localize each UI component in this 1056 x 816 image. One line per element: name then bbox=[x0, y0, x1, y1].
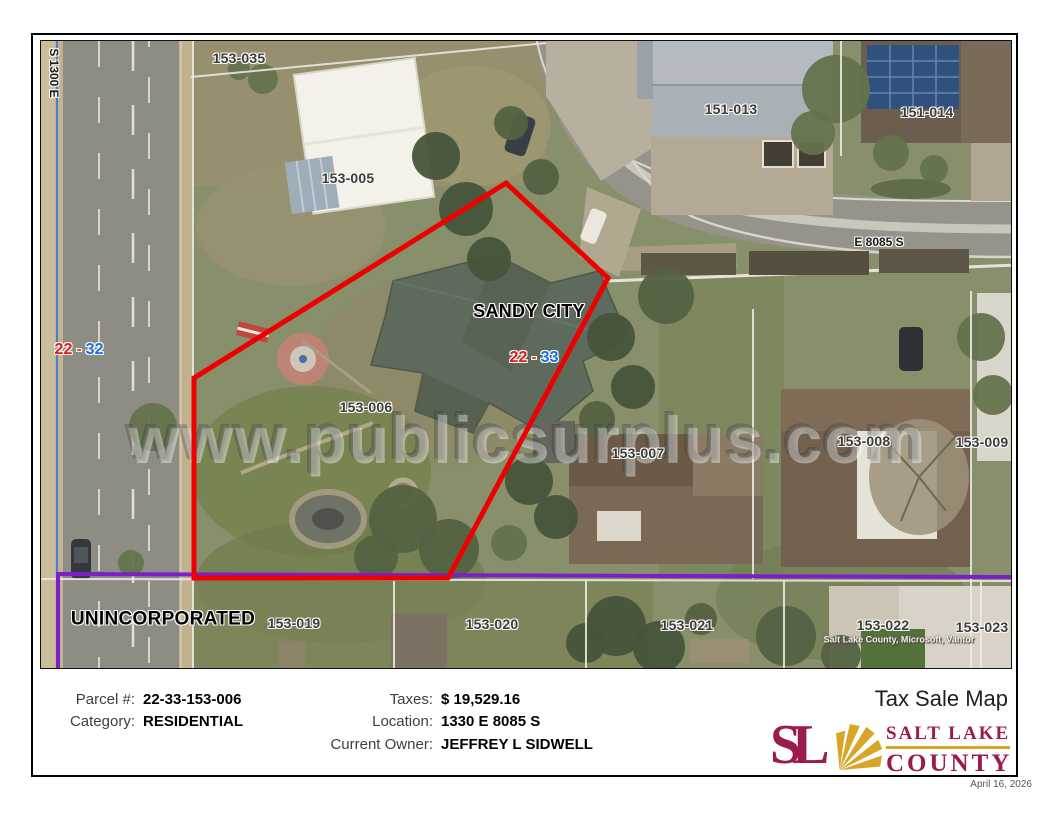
section-left-page: 32 bbox=[86, 341, 104, 358]
parcel-label-153-006: 153-006 bbox=[340, 400, 393, 414]
section-left-book: 22 bbox=[55, 341, 73, 358]
parcel-number-value: 22-33-153-006 bbox=[143, 691, 241, 708]
category-value: RESIDENTIAL bbox=[143, 713, 243, 730]
category-label: Category: bbox=[40, 713, 135, 730]
parcel-number-label: Parcel #: bbox=[40, 691, 135, 708]
parcel-label-151-014: 151-014 bbox=[901, 105, 954, 119]
watermark-text: www.publicsurplus.com bbox=[126, 401, 926, 475]
imagery-attribution: Salt Lake County, Microsoft, Vantor bbox=[824, 636, 975, 645]
logo-name-line2: COUNTY bbox=[886, 750, 1012, 778]
tax-sale-map-page: www.publicsurplus.com www.publicsurplus.… bbox=[0, 0, 1056, 816]
section-left-dash: - bbox=[76, 341, 81, 358]
logo-monogram: SL bbox=[770, 716, 821, 774]
parcel-label-153-035: 153-035 bbox=[213, 51, 266, 65]
owner-label: Current Owner: bbox=[300, 736, 433, 753]
unincorporated-label: UNINCORPORATED bbox=[71, 610, 255, 629]
taxes-value: $ 19,529.16 bbox=[441, 691, 520, 708]
logo-name-line1: SALT LAKE bbox=[886, 723, 1010, 749]
owner-value: JEFFREY L SIDWELL bbox=[441, 736, 593, 753]
parcel-label-153-009: 153-009 bbox=[956, 435, 1009, 449]
city-label-sandy: SANDY CITY bbox=[473, 302, 585, 320]
salt-lake-county-logo: SL SALT LAKE COUNTY bbox=[770, 722, 1014, 782]
parcel-label-153-021: 153-021 bbox=[661, 618, 714, 632]
parcel-label-153-019: 153-019 bbox=[268, 616, 321, 630]
section-right-book: 22 bbox=[510, 349, 528, 366]
logo-wordmark: SALT LAKE COUNTY bbox=[886, 723, 1012, 778]
section-label-22-32: 22-32 bbox=[55, 342, 104, 358]
parcel-label-153-020: 153-020 bbox=[466, 617, 519, 631]
document-title: Tax Sale Map bbox=[790, 686, 1008, 712]
street-label-e8085s: E 8085 S bbox=[854, 236, 903, 248]
location-value: 1330 E 8085 S bbox=[441, 713, 540, 730]
parcel-label-153-005: 153-005 bbox=[322, 171, 375, 185]
parcel-label-153-008: 153-008 bbox=[838, 434, 891, 448]
parcel-label-151-013: 151-013 bbox=[705, 102, 758, 116]
parcel-label-153-023: 153-023 bbox=[956, 620, 1009, 634]
parcel-label-153-022: 153-022 bbox=[857, 618, 910, 632]
parcel-label-153-007: 153-007 bbox=[612, 446, 665, 460]
taxes-label: Taxes: bbox=[300, 691, 433, 708]
section-right-page: 33 bbox=[541, 349, 559, 366]
street-label-s1300e: S 1300 E bbox=[48, 48, 60, 97]
section-label-22-33: 22-33 bbox=[510, 350, 559, 366]
aerial-map: www.publicsurplus.com www.publicsurplus.… bbox=[40, 40, 1012, 669]
document-date: April 16, 2026 bbox=[800, 779, 1032, 790]
section-right-dash: - bbox=[531, 349, 536, 366]
sunburst-icon bbox=[836, 724, 882, 774]
location-label: Location: bbox=[300, 713, 433, 730]
